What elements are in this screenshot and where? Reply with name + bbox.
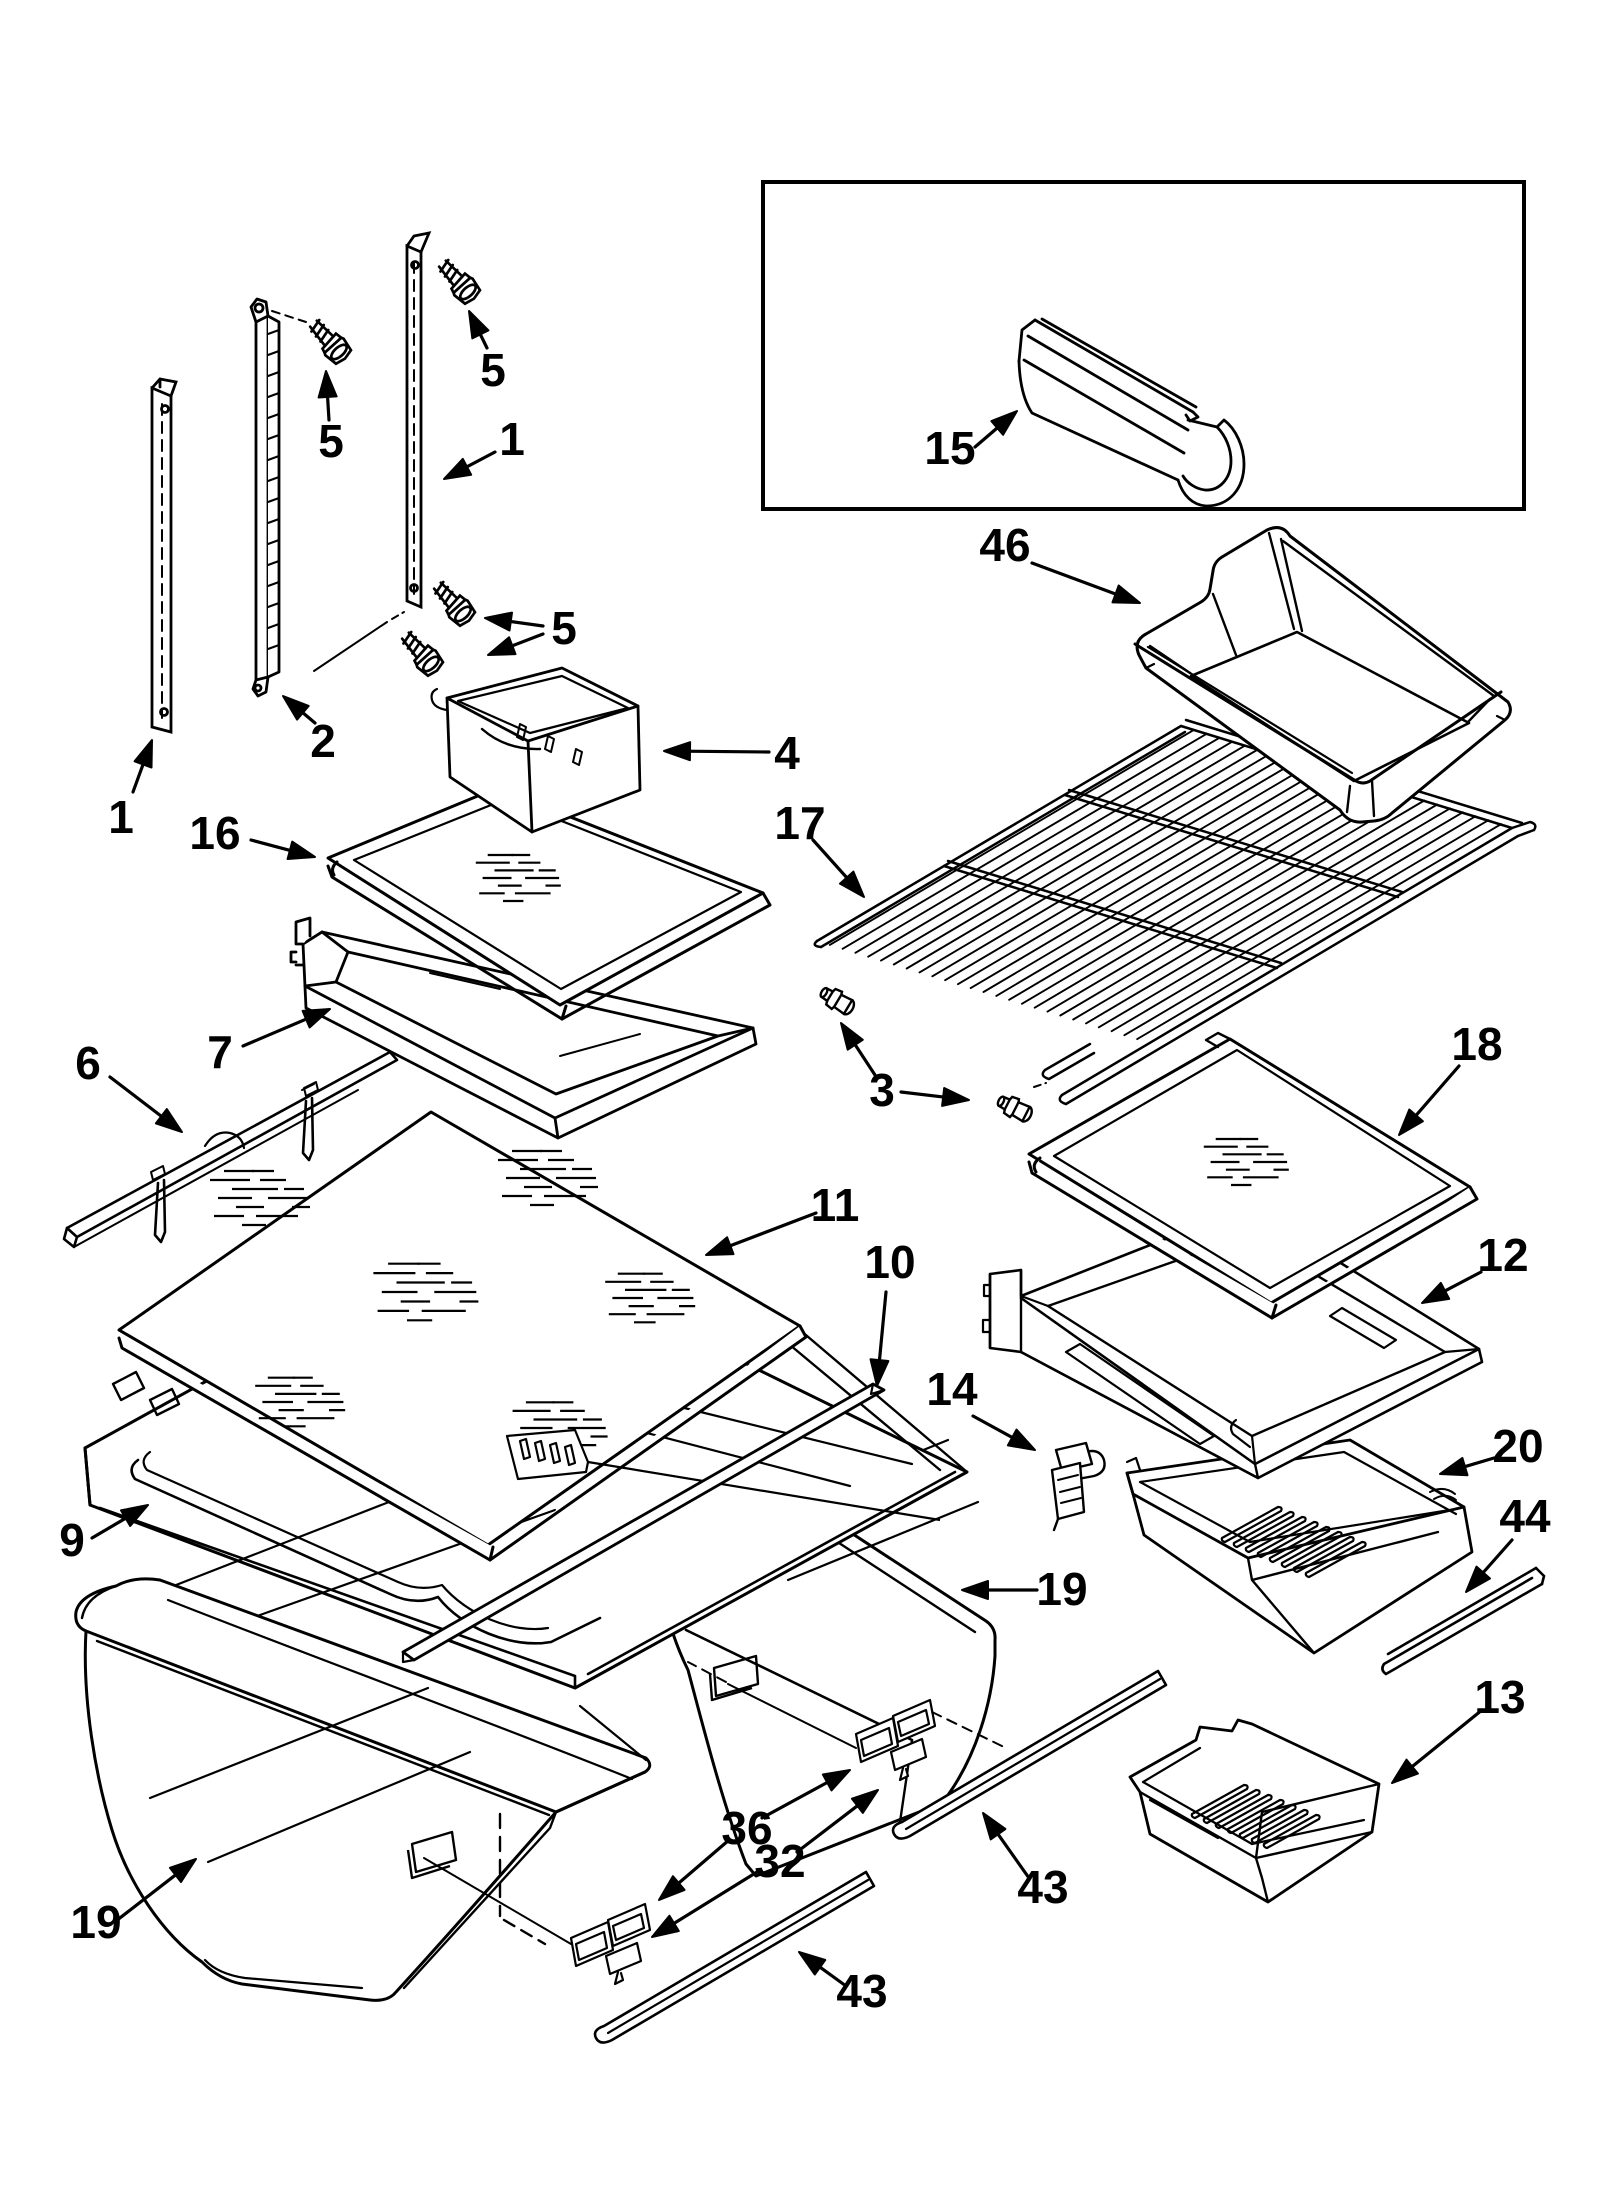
svg-text:5: 5: [551, 602, 577, 654]
svg-text:12: 12: [1477, 1229, 1528, 1281]
svg-text:6: 6: [75, 1037, 101, 1089]
svg-text:15: 15: [924, 422, 975, 474]
svg-text:5: 5: [318, 415, 344, 467]
svg-text:43: 43: [836, 1965, 887, 2017]
svg-text:11: 11: [811, 1179, 860, 1231]
svg-text:18: 18: [1451, 1018, 1502, 1070]
svg-text:20: 20: [1492, 1420, 1543, 1472]
svg-text:16: 16: [189, 807, 240, 859]
svg-text:32: 32: [754, 1835, 805, 1887]
svg-text:5: 5: [480, 344, 506, 396]
svg-text:4: 4: [774, 727, 800, 779]
svg-text:10: 10: [864, 1236, 915, 1288]
svg-text:14: 14: [926, 1363, 978, 1415]
svg-text:7: 7: [207, 1026, 233, 1078]
svg-text:9: 9: [59, 1514, 85, 1566]
svg-text:19: 19: [1036, 1563, 1087, 1615]
svg-text:43: 43: [1017, 1861, 1068, 1913]
svg-text:13: 13: [1474, 1671, 1525, 1723]
svg-text:1: 1: [499, 413, 525, 465]
svg-text:46: 46: [979, 519, 1030, 571]
svg-text:1: 1: [108, 791, 134, 843]
svg-text:44: 44: [1499, 1490, 1551, 1542]
svg-text:19: 19: [70, 1896, 121, 1948]
svg-text:17: 17: [774, 797, 825, 849]
